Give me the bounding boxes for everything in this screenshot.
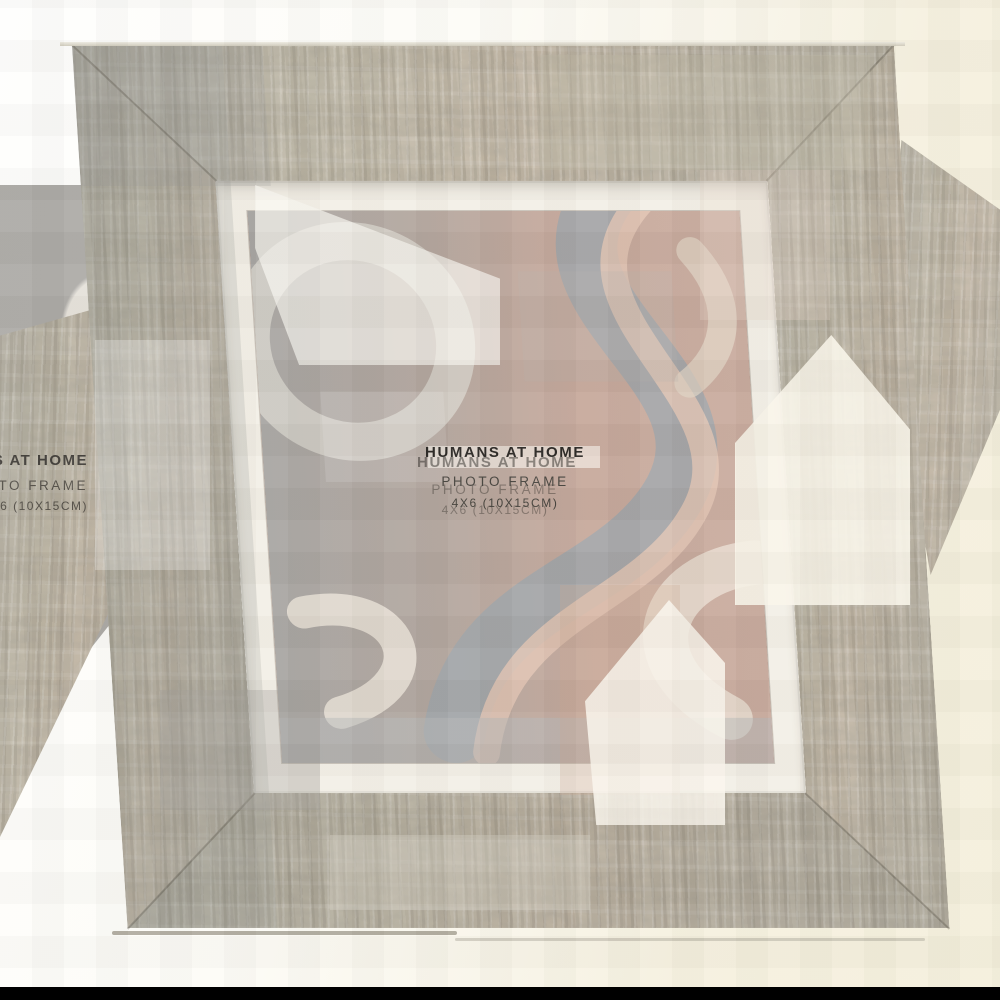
product-text: PHOTO FRAME — [385, 474, 625, 489]
glitch-ghost-label-fragment: HUMANS AT HOME PHOTO FRAME 4X6 (10X15CM) — [0, 452, 88, 513]
frame-top-highlight-edge — [60, 42, 905, 46]
bottom-black-bar — [0, 987, 1000, 1000]
ghost-brand-text: HUMANS AT HOME — [0, 452, 88, 469]
insert-label: HUMANS AT HOME PHOTO FRAME 4X6 (10X15CM) — [385, 444, 625, 510]
cast-shadow-right — [455, 938, 925, 941]
size-text: 4X6 (10X15CM) — [385, 496, 625, 510]
wood-grey-tint-corner — [72, 46, 271, 186]
art-bottom-shadow-band — [279, 718, 774, 763]
ghost-product-text: PHOTO FRAME — [0, 478, 88, 493]
ghost-size-text: 4X6 (10X15CM) — [0, 499, 88, 513]
product-photo: HUMANS AT HOME PHOTO FRAME 4X6 (10X15CM) — [0, 0, 1000, 1000]
cast-shadow-left — [112, 931, 457, 935]
brand-text: HUMANS AT HOME — [385, 444, 625, 461]
art-glitch-block-2 — [518, 271, 679, 381]
